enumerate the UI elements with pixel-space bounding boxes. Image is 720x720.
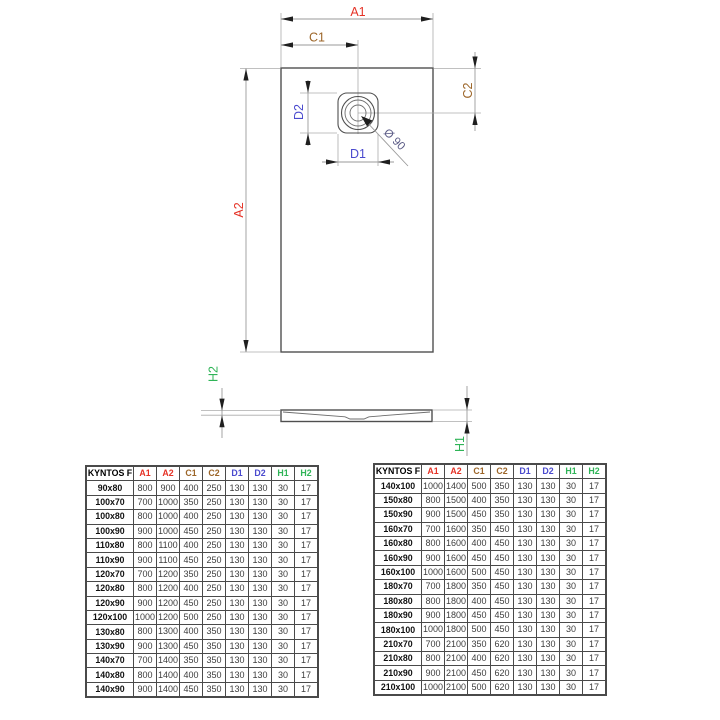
table-row: 160x8080016004004501301303017: [374, 536, 606, 550]
dimension-value-cell: 450: [468, 666, 491, 680]
size-label-cell: 160x70: [374, 522, 422, 536]
label-d2: D2: [292, 104, 306, 120]
dimension-value-cell: 17: [583, 608, 607, 622]
size-label-cell: 180x100: [374, 623, 422, 637]
dimension-value-cell: 250: [203, 481, 226, 495]
dimension-value-cell: 130: [249, 682, 272, 697]
dimension-column-header: A1: [134, 466, 157, 481]
dimension-value-cell: 450: [180, 682, 203, 697]
dimension-value-cell: 350: [203, 668, 226, 682]
dimension-value-cell: 30: [272, 596, 295, 610]
dimension-value-cell: 130: [537, 551, 560, 565]
dimension-column-header: C2: [491, 464, 514, 479]
dimension-value-cell: 130: [226, 524, 249, 538]
label-h1: H1: [453, 436, 467, 452]
dimension-value-cell: 17: [295, 668, 319, 682]
dimension-value-cell: 130: [249, 495, 272, 509]
dimension-value-cell: 400: [180, 668, 203, 682]
dimension-value-cell: 450: [491, 565, 514, 579]
dimension-value-cell: 130: [249, 567, 272, 581]
dimension-value-cell: 30: [560, 522, 583, 536]
table-row: 130x9090013004503501301303017: [86, 639, 318, 653]
label-c2: C2: [461, 82, 475, 98]
table-row: 120x7070012003502501301303017: [86, 567, 318, 581]
dimension-value-cell: 2100: [445, 666, 468, 680]
size-label-cell: 160x90: [374, 551, 422, 565]
dimension-value-cell: 17: [583, 493, 607, 507]
dimension-value-cell: 30: [272, 553, 295, 567]
dimension-value-cell: 620: [491, 666, 514, 680]
dimension-value-cell: 17: [295, 582, 319, 596]
dimension-value-cell: 30: [560, 637, 583, 651]
dimension-value-cell: 130: [537, 580, 560, 594]
dimension-value-cell: 130: [537, 594, 560, 608]
dimension-value-cell: 350: [491, 508, 514, 522]
dimension-value-cell: 17: [295, 524, 319, 538]
dimension-value-cell: 17: [583, 508, 607, 522]
dimension-value-cell: 800: [422, 536, 445, 550]
dimension-value-cell: 130: [514, 536, 537, 550]
dimension-value-cell: 130: [249, 596, 272, 610]
dimension-value-cell: 30: [560, 508, 583, 522]
size-label-cell: 180x90: [374, 608, 422, 622]
dimension-value-cell: 900: [134, 524, 157, 538]
dimension-value-cell: 130: [249, 654, 272, 668]
dimension-value-cell: 130: [226, 553, 249, 567]
dimension-value-cell: 500: [468, 479, 491, 493]
dimension-column-header: A1: [422, 464, 445, 479]
label-a1: A1: [350, 5, 365, 19]
dimension-value-cell: 30: [272, 567, 295, 581]
dimension-column-header: H1: [560, 464, 583, 479]
dimension-value-cell: 30: [560, 623, 583, 637]
header-row: KYNTOS FA1A2C1C2D1D2H1H2: [374, 464, 606, 479]
dimension-value-cell: 2100: [445, 652, 468, 666]
dimension-value-cell: 450: [491, 580, 514, 594]
dimension-value-cell: 1500: [445, 508, 468, 522]
dimension-value-cell: 30: [272, 510, 295, 524]
dimension-value-cell: 800: [134, 510, 157, 524]
table-row: 160x9090016004504501301303017: [374, 551, 606, 565]
dimension-value-cell: 130: [226, 596, 249, 610]
label-h2: H2: [207, 366, 221, 382]
dimension-value-cell: 1000: [422, 623, 445, 637]
dimension-value-cell: 400: [468, 652, 491, 666]
dimension-column-header: H2: [295, 466, 319, 481]
size-label-cell: 90x80: [86, 481, 134, 495]
size-label-cell: 110x90: [86, 553, 134, 567]
dimension-value-cell: 30: [272, 481, 295, 495]
dimension-value-cell: 130: [226, 654, 249, 668]
size-label-cell: 210x80: [374, 652, 422, 666]
dimension-h1: H1: [433, 386, 472, 456]
table-row: 210x8080021004006201301303017: [374, 652, 606, 666]
dimension-value-cell: 620: [491, 680, 514, 695]
dimension-value-cell: 130: [537, 608, 560, 622]
dimension-value-cell: 1000: [422, 680, 445, 695]
dimension-value-cell: 1300: [157, 625, 180, 639]
dimension-value-cell: 30: [560, 666, 583, 680]
dimension-value-cell: 130: [514, 580, 537, 594]
dimension-value-cell: 130: [226, 582, 249, 596]
dimension-value-cell: 500: [468, 623, 491, 637]
size-label-cell: 210x100: [374, 680, 422, 695]
size-label-cell: 150x90: [374, 508, 422, 522]
table-row: 140x9090014004503501301303017: [86, 682, 318, 697]
dimension-value-cell: 17: [583, 479, 607, 493]
dimension-value-cell: 130: [514, 666, 537, 680]
dimension-value-cell: 350: [468, 522, 491, 536]
size-label-cell: 140x100: [374, 479, 422, 493]
dimension-value-cell: 700: [134, 567, 157, 581]
dimension-value-cell: 900: [422, 508, 445, 522]
dimension-value-cell: 130: [226, 682, 249, 697]
dimension-value-cell: 130: [537, 680, 560, 695]
dimension-value-cell: 30: [560, 565, 583, 579]
table-row: 140x7070014003503501301303017: [86, 654, 318, 668]
dimension-value-cell: 130: [537, 623, 560, 637]
dimension-a1: A1: [281, 5, 433, 67]
dimension-value-cell: 1800: [445, 623, 468, 637]
dimension-value-cell: 250: [203, 553, 226, 567]
dimension-value-cell: 30: [272, 524, 295, 538]
dimension-value-cell: 800: [134, 538, 157, 552]
dimension-value-cell: 130: [249, 582, 272, 596]
dimension-value-cell: 350: [468, 637, 491, 651]
dimension-value-cell: 700: [422, 580, 445, 594]
table-row: 210x7070021003506201301303017: [374, 637, 606, 651]
dimension-value-cell: 450: [491, 594, 514, 608]
side-profile-outline: [281, 410, 432, 422]
dimension-value-cell: 17: [295, 654, 319, 668]
dimension-value-cell: 130: [537, 666, 560, 680]
table-row: 100x7070010003502501301303017: [86, 495, 318, 509]
dimension-value-cell: 800: [134, 582, 157, 596]
dimension-column-header: C1: [180, 466, 203, 481]
dimension-value-cell: 130: [249, 639, 272, 653]
dimension-value-cell: 17: [583, 551, 607, 565]
dimension-value-cell: 1000: [157, 524, 180, 538]
dimension-value-cell: 1400: [445, 479, 468, 493]
dimension-value-cell: 1600: [445, 522, 468, 536]
dimension-value-cell: 30: [272, 654, 295, 668]
table-row: 150x8080015004003501301303017: [374, 493, 606, 507]
dimension-value-cell: 250: [203, 567, 226, 581]
dimension-value-cell: 130: [537, 479, 560, 493]
dimension-value-cell: 620: [491, 652, 514, 666]
dimension-value-cell: 130: [537, 508, 560, 522]
size-label-cell: 100x80: [86, 510, 134, 524]
label-c1: C1: [309, 31, 325, 45]
dimension-value-cell: 800: [134, 668, 157, 682]
dimension-value-cell: 17: [583, 565, 607, 579]
dimension-value-cell: 17: [583, 637, 607, 651]
dimension-value-cell: 1200: [157, 567, 180, 581]
dimension-value-cell: 450: [491, 551, 514, 565]
model-column-header: KYNTOS F: [374, 464, 422, 479]
dimension-value-cell: 17: [583, 594, 607, 608]
size-label-cell: 100x70: [86, 495, 134, 509]
table-row: 210x9090021004506201301303017: [374, 666, 606, 680]
dimension-value-cell: 900: [422, 608, 445, 622]
dimension-value-cell: 350: [468, 580, 491, 594]
dimension-value-cell: 17: [295, 481, 319, 495]
dimension-value-cell: 30: [272, 538, 295, 552]
dimension-value-cell: 450: [468, 608, 491, 622]
dimension-value-cell: 130: [249, 553, 272, 567]
size-label-cell: 120x90: [86, 596, 134, 610]
table-row: 110x8080011004002501301303017: [86, 538, 318, 552]
dimension-value-cell: 800: [134, 481, 157, 495]
dimension-column-header: C2: [203, 466, 226, 481]
side-view: [281, 410, 432, 422]
dimension-value-cell: 130: [537, 637, 560, 651]
dimension-value-cell: 130: [249, 625, 272, 639]
size-label-cell: 210x70: [374, 637, 422, 651]
dimension-value-cell: 1000: [134, 610, 157, 624]
table-row: 90x808009004002501301303017: [86, 481, 318, 495]
dimension-value-cell: 130: [514, 680, 537, 695]
table-row: 100x8080010004002501301303017: [86, 510, 318, 524]
dimension-table: KYNTOS FA1A2C1C2D1D2H1H290x8080090040025…: [85, 465, 319, 698]
dimension-value-cell: 350: [180, 654, 203, 668]
dimension-value-cell: 450: [491, 608, 514, 622]
dimension-value-cell: 17: [583, 580, 607, 594]
dimension-value-cell: 130: [514, 508, 537, 522]
dimension-value-cell: 350: [491, 493, 514, 507]
dimension-value-cell: 1800: [445, 594, 468, 608]
table-row: 120x100100012005002501301303017: [86, 610, 318, 624]
dimension-value-cell: 500: [468, 680, 491, 695]
dimension-value-cell: 17: [295, 510, 319, 524]
table-row: 210x100100021005006201301303017: [374, 680, 606, 695]
dimension-value-cell: 350: [203, 625, 226, 639]
dimension-value-cell: 900: [134, 553, 157, 567]
label-a2: A2: [232, 202, 246, 217]
dimension-value-cell: 130: [226, 610, 249, 624]
dimension-value-cell: 130: [514, 608, 537, 622]
dimension-value-cell: 130: [249, 610, 272, 624]
dimension-value-cell: 400: [180, 582, 203, 596]
dimension-value-cell: 700: [134, 654, 157, 668]
dimension-value-cell: 130: [514, 493, 537, 507]
size-table-right: KYNTOS FA1A2C1C2D1D2H1H2140x100100014005…: [373, 463, 607, 696]
size-label-cell: 150x80: [374, 493, 422, 507]
dimension-value-cell: 17: [295, 495, 319, 509]
dimension-value-cell: 130: [514, 522, 537, 536]
dimension-value-cell: 1000: [422, 479, 445, 493]
table-row: 140x100100014005003501301303017: [374, 479, 606, 493]
dimension-value-cell: 450: [180, 553, 203, 567]
dimension-value-cell: 1800: [445, 580, 468, 594]
dimension-value-cell: 450: [468, 508, 491, 522]
dimension-column-header: C1: [468, 464, 491, 479]
dimension-value-cell: 1200: [157, 596, 180, 610]
dimension-value-cell: 450: [180, 596, 203, 610]
dimension-column-header: D1: [514, 464, 537, 479]
dimension-value-cell: 350: [180, 495, 203, 509]
table-row: 130x8080013004003501301303017: [86, 625, 318, 639]
dimension-value-cell: 1600: [445, 565, 468, 579]
dimension-value-cell: 500: [180, 610, 203, 624]
dimension-value-cell: 130: [514, 479, 537, 493]
dimension-value-cell: 130: [249, 668, 272, 682]
table-row: 100x9090010004502501301303017: [86, 524, 318, 538]
dimension-column-header: D2: [537, 464, 560, 479]
dimension-value-cell: 17: [295, 596, 319, 610]
dimension-value-cell: 30: [560, 479, 583, 493]
dimension-column-header: D1: [226, 466, 249, 481]
dimension-value-cell: 250: [203, 510, 226, 524]
size-label-cell: 110x80: [86, 538, 134, 552]
dimension-value-cell: 130: [514, 565, 537, 579]
dimension-value-cell: 1500: [445, 493, 468, 507]
dimension-value-cell: 2100: [445, 680, 468, 695]
dimension-value-cell: 250: [203, 596, 226, 610]
dimension-value-cell: 30: [560, 536, 583, 550]
table-row: 120x8080012004002501301303017: [86, 582, 318, 596]
dimension-value-cell: 17: [295, 538, 319, 552]
dimension-value-cell: 350: [203, 639, 226, 653]
dimension-value-cell: 1100: [157, 553, 180, 567]
dimension-value-cell: 900: [134, 596, 157, 610]
dimension-value-cell: 130: [249, 538, 272, 552]
dimension-value-cell: 130: [514, 637, 537, 651]
dimension-value-cell: 1600: [445, 551, 468, 565]
dimension-value-cell: 1600: [445, 536, 468, 550]
dimension-value-cell: 1200: [157, 610, 180, 624]
dimension-column-header: A2: [445, 464, 468, 479]
dimension-value-cell: 1400: [157, 668, 180, 682]
dimension-value-cell: 400: [180, 481, 203, 495]
dimension-value-cell: 17: [295, 567, 319, 581]
dimension-value-cell: 1000: [157, 510, 180, 524]
dimension-value-cell: 17: [295, 553, 319, 567]
dimension-value-cell: 130: [537, 652, 560, 666]
dimension-value-cell: 130: [226, 495, 249, 509]
dimension-value-cell: 17: [583, 623, 607, 637]
dimension-value-cell: 30: [560, 652, 583, 666]
dimension-value-cell: 130: [249, 524, 272, 538]
dimension-value-cell: 30: [560, 608, 583, 622]
label-d1: D1: [350, 147, 366, 161]
dimension-value-cell: 130: [537, 493, 560, 507]
dimension-c2: C2: [434, 52, 481, 131]
dimension-value-cell: 30: [272, 668, 295, 682]
dimension-value-cell: 2100: [445, 637, 468, 651]
dimension-value-cell: 1000: [157, 495, 180, 509]
dimension-value-cell: 450: [180, 524, 203, 538]
dimension-value-cell: 17: [583, 680, 607, 695]
size-table-left: KYNTOS FA1A2C1C2D1D2H1H290x8080090040025…: [85, 465, 319, 698]
dimension-value-cell: 130: [226, 567, 249, 581]
dimension-value-cell: 30: [272, 495, 295, 509]
dimension-value-cell: 450: [468, 551, 491, 565]
dimension-value-cell: 17: [583, 522, 607, 536]
dimension-value-cell: 17: [295, 639, 319, 653]
dimension-value-cell: 250: [203, 495, 226, 509]
table-row: 120x9090012004502501301303017: [86, 596, 318, 610]
dimension-value-cell: 400: [180, 510, 203, 524]
dimension-value-cell: 400: [468, 594, 491, 608]
dimension-a2: A2: [232, 69, 280, 353]
dimension-value-cell: 17: [295, 610, 319, 624]
dimension-value-cell: 130: [226, 639, 249, 653]
size-label-cell: 210x90: [374, 666, 422, 680]
dimension-value-cell: 130: [226, 625, 249, 639]
dimension-h2: H2: [201, 366, 280, 438]
size-label-cell: 140x80: [86, 668, 134, 682]
dimension-value-cell: 500: [468, 565, 491, 579]
dimension-value-cell: 130: [514, 551, 537, 565]
dimension-value-cell: 450: [180, 639, 203, 653]
dimension-value-cell: 700: [422, 522, 445, 536]
size-label-cell: 160x80: [374, 536, 422, 550]
dimension-value-cell: 130: [514, 623, 537, 637]
dimension-value-cell: 400: [468, 536, 491, 550]
table-row: 180x7070018003504501301303017: [374, 580, 606, 594]
dimension-value-cell: 30: [272, 639, 295, 653]
size-label-cell: 120x80: [86, 582, 134, 596]
dimension-value-cell: 130: [537, 565, 560, 579]
dimension-value-cell: 30: [272, 682, 295, 697]
dimension-value-cell: 17: [583, 536, 607, 550]
size-label-cell: 160x100: [374, 565, 422, 579]
dimension-column-header: H2: [583, 464, 607, 479]
dimension-value-cell: 900: [134, 682, 157, 697]
dimension-value-cell: 1400: [157, 682, 180, 697]
dimension-value-cell: 130: [226, 668, 249, 682]
model-column-header: KYNTOS F: [86, 466, 134, 481]
dimension-value-cell: 130: [514, 594, 537, 608]
dimension-value-cell: 130: [537, 522, 560, 536]
dimension-value-cell: 1000: [422, 565, 445, 579]
dimension-value-cell: 400: [180, 625, 203, 639]
product-dimension-sheet: A1 C1 C2 A2: [0, 0, 720, 720]
dimension-value-cell: 30: [272, 625, 295, 639]
dimension-value-cell: 900: [157, 481, 180, 495]
table-row: 160x7070016003504501301303017: [374, 522, 606, 536]
table-row: 180x9090018004504501301303017: [374, 608, 606, 622]
table-row: 180x100100018005004501301303017: [374, 623, 606, 637]
size-label-cell: 140x70: [86, 654, 134, 668]
dimension-value-cell: 30: [272, 610, 295, 624]
dimension-value-cell: 250: [203, 524, 226, 538]
dimension-table: KYNTOS FA1A2C1C2D1D2H1H2140x100100014005…: [373, 463, 607, 696]
table-row: 180x8080018004004501301303017: [374, 594, 606, 608]
dimension-value-cell: 130: [249, 510, 272, 524]
dimension-value-cell: 800: [422, 652, 445, 666]
dimension-value-cell: 450: [491, 522, 514, 536]
dimension-value-cell: 400: [468, 493, 491, 507]
dimension-value-cell: 350: [203, 654, 226, 668]
dimension-value-cell: 17: [295, 682, 319, 697]
dimension-value-cell: 130: [226, 538, 249, 552]
dimension-value-cell: 700: [422, 637, 445, 651]
dimension-value-cell: 1200: [157, 582, 180, 596]
dimension-value-cell: 450: [491, 536, 514, 550]
dimension-value-cell: 350: [491, 479, 514, 493]
dimension-value-cell: 900: [134, 639, 157, 653]
header-row: KYNTOS FA1A2C1C2D1D2H1H2: [86, 466, 318, 481]
dimension-value-cell: 900: [422, 666, 445, 680]
dimension-value-cell: 1300: [157, 639, 180, 653]
dimension-value-cell: 1800: [445, 608, 468, 622]
dimension-value-cell: 800: [422, 594, 445, 608]
table-row: 140x8080014004003501301303017: [86, 668, 318, 682]
dimension-value-cell: 130: [226, 510, 249, 524]
dimension-value-cell: 250: [203, 582, 226, 596]
